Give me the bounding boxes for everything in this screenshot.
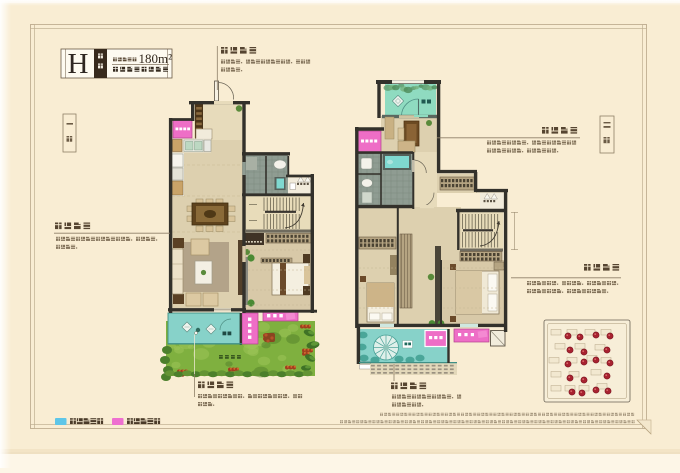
svg-text:180m²: 180m² <box>139 51 173 66</box>
svg-text:H: H <box>68 48 89 80</box>
